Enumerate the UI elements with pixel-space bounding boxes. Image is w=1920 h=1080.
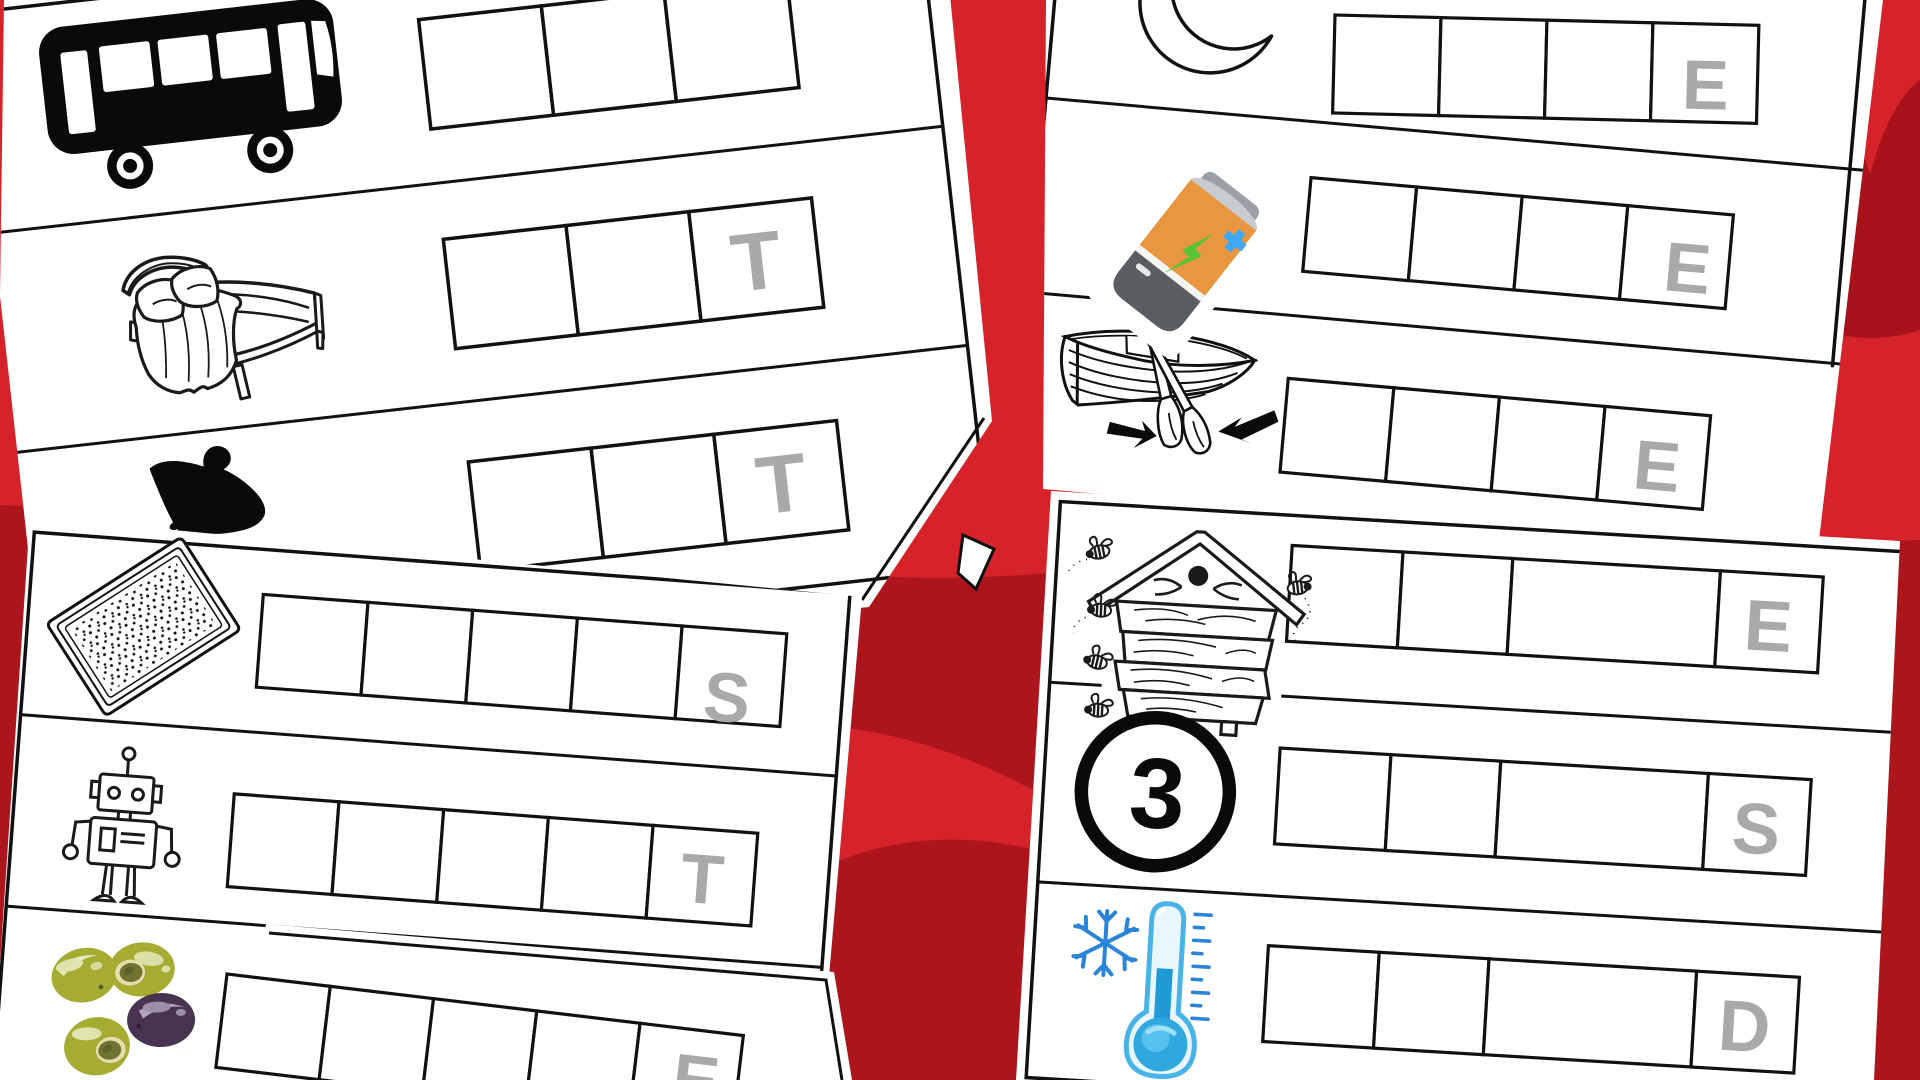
svg-text:E: E <box>1661 227 1714 309</box>
svg-text:S: S <box>1730 788 1783 871</box>
svg-text:T: T <box>678 839 726 920</box>
svg-text:E: E <box>1742 585 1795 668</box>
svg-text:S: S <box>701 657 753 738</box>
svg-text:E: E <box>1681 46 1730 125</box>
svg-text:E: E <box>1630 425 1683 507</box>
svg-text:3: 3 <box>1126 736 1188 851</box>
svg-text:E: E <box>668 1039 724 1080</box>
svg-text:T: T <box>727 214 787 310</box>
svg-text:D: D <box>1716 986 1773 1069</box>
svg-text:T: T <box>752 437 812 533</box>
